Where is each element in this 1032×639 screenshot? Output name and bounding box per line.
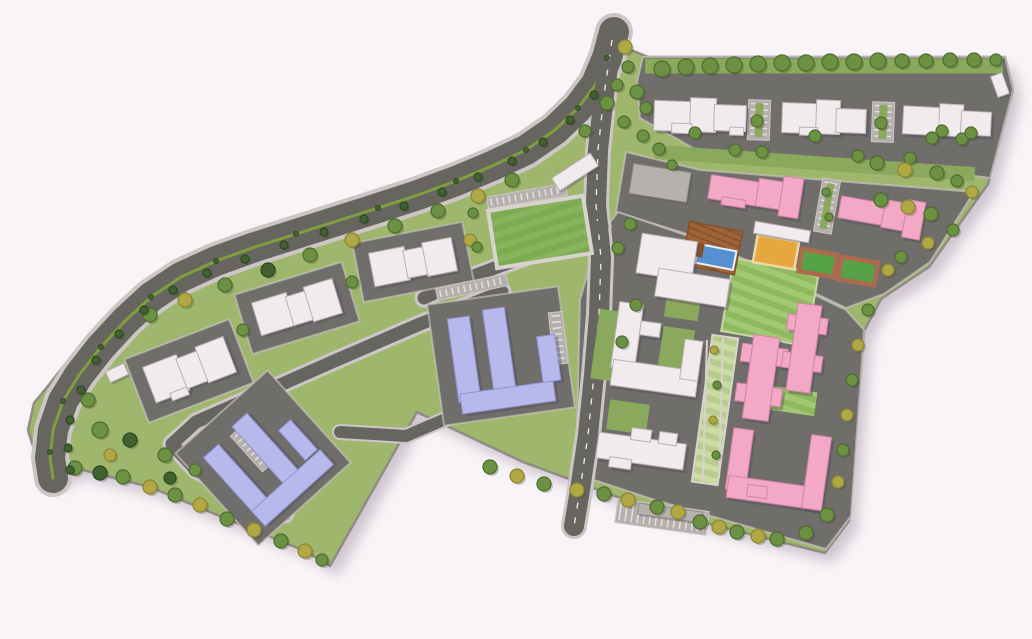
tree <box>143 480 157 494</box>
tree <box>178 293 192 307</box>
tree <box>799 526 813 540</box>
tree <box>713 381 721 389</box>
tree <box>66 466 74 474</box>
tree <box>904 152 916 164</box>
tree <box>218 278 232 292</box>
median-tree <box>453 178 458 183</box>
east-pink-slab-block <box>813 356 823 373</box>
median-tree <box>293 231 298 236</box>
tree <box>654 61 670 77</box>
tree <box>901 200 915 214</box>
north-row-white-1-block <box>729 127 743 135</box>
tree <box>837 444 849 456</box>
tree <box>483 460 497 474</box>
tree <box>936 125 948 137</box>
tree <box>220 512 234 526</box>
tree <box>882 264 894 276</box>
tree <box>597 487 611 501</box>
tree <box>756 146 768 158</box>
tree <box>471 189 485 203</box>
tree <box>895 251 907 263</box>
north-row-white-2-block <box>836 108 867 133</box>
masterplan-svg <box>0 0 1032 639</box>
tree <box>116 470 130 484</box>
tree <box>630 85 644 99</box>
tree <box>770 532 784 546</box>
tree <box>468 208 478 218</box>
tree <box>809 130 821 142</box>
tree <box>92 356 100 364</box>
tree <box>667 160 677 170</box>
tree <box>943 53 957 67</box>
tree <box>104 449 116 461</box>
tree <box>870 156 884 170</box>
tree <box>730 525 744 539</box>
tree <box>438 188 446 196</box>
tree <box>671 505 685 519</box>
tree <box>750 56 766 72</box>
tree <box>726 57 742 73</box>
tree <box>702 58 718 74</box>
median-tree <box>148 294 153 299</box>
tree <box>508 157 516 165</box>
tree <box>93 466 107 480</box>
tree <box>924 207 938 221</box>
tree <box>158 448 172 462</box>
tree <box>930 166 944 180</box>
tree <box>298 544 312 558</box>
tree <box>570 483 584 497</box>
tree <box>624 218 636 230</box>
east-pink-slab-block <box>786 314 796 331</box>
tree <box>537 477 551 491</box>
tree <box>566 116 574 124</box>
tree <box>922 237 934 249</box>
southeast-white-2-block <box>658 431 677 445</box>
tree <box>193 498 207 512</box>
site-plan-canvas <box>0 0 1032 639</box>
east-pink-slab-block <box>818 318 828 335</box>
tree <box>841 409 853 421</box>
tree <box>345 233 359 247</box>
tree <box>966 186 978 198</box>
tree <box>612 242 624 254</box>
tree <box>798 55 814 71</box>
tree <box>388 219 402 233</box>
tree <box>689 127 701 139</box>
east-pink-slab-block <box>781 351 791 368</box>
sports-field <box>488 196 592 268</box>
tree <box>712 520 726 534</box>
southeast-pink-h-block <box>735 383 747 402</box>
tree <box>189 464 201 476</box>
tree <box>852 150 864 162</box>
tree <box>472 242 482 252</box>
tree <box>590 91 598 99</box>
tree <box>895 54 909 68</box>
tree <box>600 96 614 110</box>
tree <box>751 115 763 127</box>
median-tree <box>47 449 52 454</box>
tree <box>820 508 834 522</box>
tree <box>164 472 176 484</box>
tree <box>123 433 137 447</box>
tree <box>611 79 623 91</box>
west-row-white-3-block <box>422 237 458 276</box>
tree <box>241 255 249 263</box>
tree <box>710 346 718 354</box>
tree <box>77 386 85 394</box>
tree <box>947 224 959 236</box>
tree <box>346 276 358 288</box>
tree <box>640 102 652 114</box>
tree <box>729 144 741 156</box>
median-tree <box>60 398 65 403</box>
tree <box>862 304 874 316</box>
tree <box>678 59 694 75</box>
tree <box>505 173 519 187</box>
southeast-white-l-block <box>639 321 661 338</box>
tree <box>870 53 886 69</box>
tree <box>898 163 912 177</box>
southeast-pink-u-block <box>747 484 768 499</box>
tree <box>693 515 707 529</box>
southeast-pink-h-block <box>740 343 752 362</box>
tree <box>637 130 649 142</box>
median-tree <box>98 344 103 349</box>
tree <box>621 493 635 507</box>
median-tree <box>523 147 528 152</box>
tree <box>618 116 630 128</box>
tree <box>140 306 148 314</box>
tree <box>846 54 862 70</box>
tree <box>92 422 108 438</box>
median-tree <box>213 258 218 263</box>
tree <box>115 330 123 338</box>
median-tree <box>575 105 580 110</box>
tree <box>967 53 981 67</box>
tree <box>874 193 888 207</box>
tree <box>579 125 591 137</box>
tree <box>237 324 249 336</box>
tree <box>203 269 211 277</box>
tree <box>919 54 933 68</box>
median-tree <box>375 205 380 210</box>
median-tree <box>604 55 609 60</box>
tree <box>400 202 408 210</box>
tree <box>846 374 858 386</box>
tree <box>66 416 74 424</box>
tree <box>751 529 765 543</box>
tree <box>168 488 182 502</box>
tree <box>825 213 833 221</box>
tree <box>852 339 864 351</box>
tree <box>709 416 717 424</box>
tree <box>320 228 328 236</box>
tree <box>510 469 524 483</box>
tree <box>951 175 963 187</box>
tree <box>822 54 838 70</box>
tree <box>832 476 844 488</box>
tree <box>360 215 368 223</box>
tree <box>650 500 664 514</box>
tree <box>303 248 317 262</box>
tree <box>169 286 177 294</box>
tree <box>618 40 632 54</box>
tree <box>316 554 328 566</box>
tree <box>474 173 482 181</box>
tree <box>64 444 72 452</box>
tree <box>653 143 665 155</box>
southeast-white-2-block <box>631 428 652 443</box>
tree <box>274 534 288 548</box>
tree <box>431 204 445 218</box>
tree <box>990 54 1002 66</box>
tree <box>774 55 790 71</box>
tree <box>965 127 977 139</box>
southeast-pink-h-block <box>770 388 782 407</box>
tree <box>822 188 830 196</box>
tree <box>539 138 547 146</box>
tree <box>280 241 288 249</box>
tree <box>261 263 275 277</box>
tree <box>622 61 634 73</box>
tree <box>630 299 642 311</box>
tree <box>616 336 628 348</box>
tree <box>875 117 887 129</box>
tree <box>712 451 720 459</box>
tree <box>247 523 261 537</box>
